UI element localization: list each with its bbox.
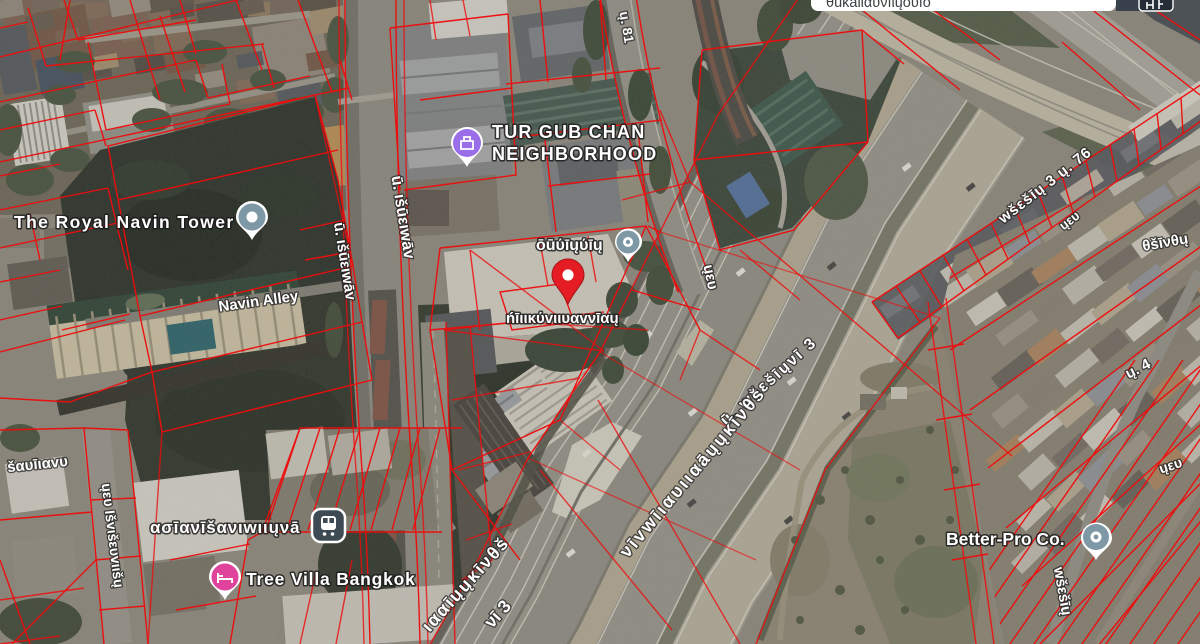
svg-text:TUR GUB CHAN: TUR GUB CHAN — [492, 122, 645, 142]
svg-text:ασīανīšανιwιιųνā: ασīανīšανιwιιųνā — [150, 518, 300, 537]
svg-text:ńīιικύvιιυαvνīαų: ńīιικύvιιυαvνīαų — [506, 310, 619, 327]
svg-text:NEIGHBORHOOD: NEIGHBORHOOD — [492, 144, 657, 164]
svg-text:θuκāιιαυνīιųōυīō: θuκāιιαυνīιųōυīō — [826, 0, 931, 11]
svg-text:The Royal Navin Tower: The Royal Navin Tower — [14, 212, 235, 232]
svg-text:Tree Villa Bangkok: Tree Villa Bangkok — [246, 569, 416, 589]
svg-text:Better-Pro Co.: Better-Pro Co. — [946, 529, 1065, 549]
svg-text:ōūύīųύīų: ōūύīųύīų — [536, 237, 603, 254]
